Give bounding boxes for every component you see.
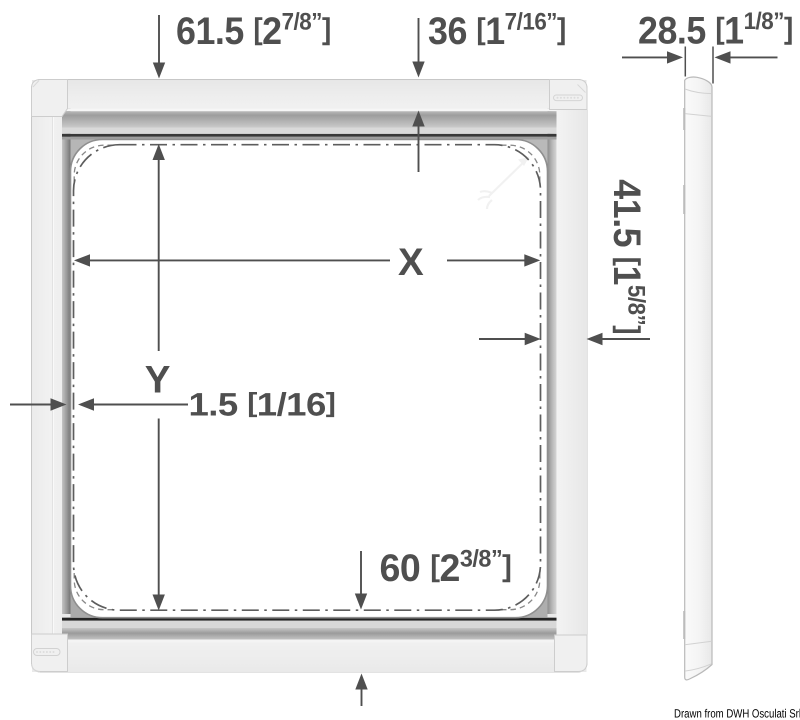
svg-text:1.5 [1/16]: 1.5 [1/16] bbox=[189, 387, 336, 423]
svg-text:X: X bbox=[398, 241, 424, 284]
svg-text:Drawn from DWH Osculati Srl: Drawn from DWH Osculati Srl bbox=[674, 707, 800, 720]
svg-text:Y: Y bbox=[145, 359, 171, 402]
